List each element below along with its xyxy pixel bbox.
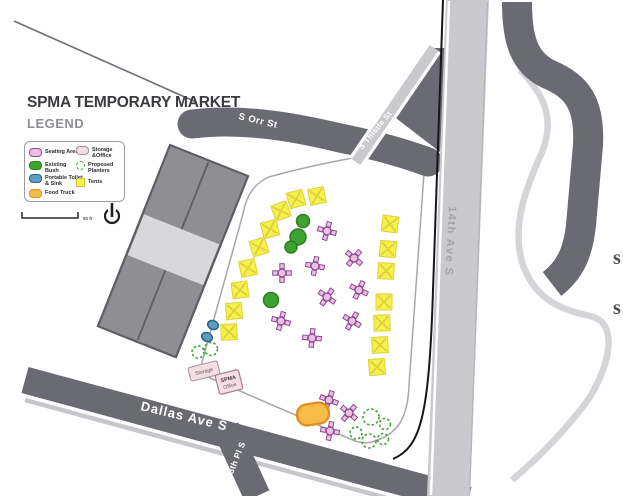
legend-item-storage: Storage &Office <box>76 146 116 160</box>
proposed-planters-swatch-icon <box>76 161 85 170</box>
legend-item-label: Storage &Office <box>92 146 116 160</box>
map-canvas: S Orr St S Thistle St 14th Ave S Dallas … <box>0 0 623 496</box>
tent-marker <box>378 263 395 280</box>
food-truck-swatch-icon <box>29 189 42 198</box>
legend-item-label: Proposed Planters <box>88 161 116 175</box>
tent-marker <box>374 315 391 332</box>
storage-office-swatch-icon <box>76 146 89 155</box>
north-arrow-icon <box>105 203 119 223</box>
tent-marker <box>379 240 396 257</box>
legend-item-seating: Seating Area <box>29 148 81 157</box>
tent-marker <box>368 358 385 375</box>
legend-item-foodtruck: Food Truck <box>29 189 81 198</box>
tent-marker <box>372 337 389 354</box>
scale-label: 50 ft <box>83 216 93 221</box>
legend-item-label: Food Truck <box>45 189 81 196</box>
legend-box: Seating Area Existing Bush Portable Toil… <box>24 141 125 202</box>
road-northeast <box>517 2 588 284</box>
planter-marker <box>192 346 204 358</box>
existing-bush-swatch-icon <box>29 161 42 170</box>
legend-item-bush: Existing Bush <box>29 161 81 175</box>
legend-item-toilet: Portable Toilet & Sink <box>29 174 83 188</box>
tent-marker <box>286 189 306 209</box>
tent-marker <box>260 219 280 239</box>
page-title: SPMA TEMPORARY MARKET <box>27 94 240 112</box>
legend-item-tents: Tents <box>76 178 116 187</box>
tent-marker <box>308 187 327 206</box>
tent-marker <box>221 324 238 341</box>
bush-marker <box>264 293 279 308</box>
legend-item-label: Tents <box>88 178 116 185</box>
edge-clipped-text: s <box>613 298 623 318</box>
legend-heading: LEGEND <box>27 116 84 131</box>
scale-bar: 50 ft <box>22 212 93 221</box>
tent-marker <box>381 215 399 233</box>
tent-marker <box>376 294 392 310</box>
seating-area-swatch-icon <box>29 148 42 157</box>
tent-marker <box>239 259 258 278</box>
tent-marker <box>225 302 242 319</box>
bush-marker <box>285 241 297 253</box>
boundary-line <box>14 21 196 102</box>
edge-clipped-text: s <box>613 248 623 268</box>
road-s-orr <box>192 122 428 162</box>
tents-swatch-icon <box>76 178 85 187</box>
site-plan-map: S Orr St S Thistle St 14th Ave S Dallas … <box>0 0 623 496</box>
tent-marker <box>231 281 249 299</box>
legend-item-planters: Proposed Planters <box>76 161 116 175</box>
portable-toilet-swatch-icon <box>29 174 42 183</box>
bush-marker <box>297 215 310 228</box>
